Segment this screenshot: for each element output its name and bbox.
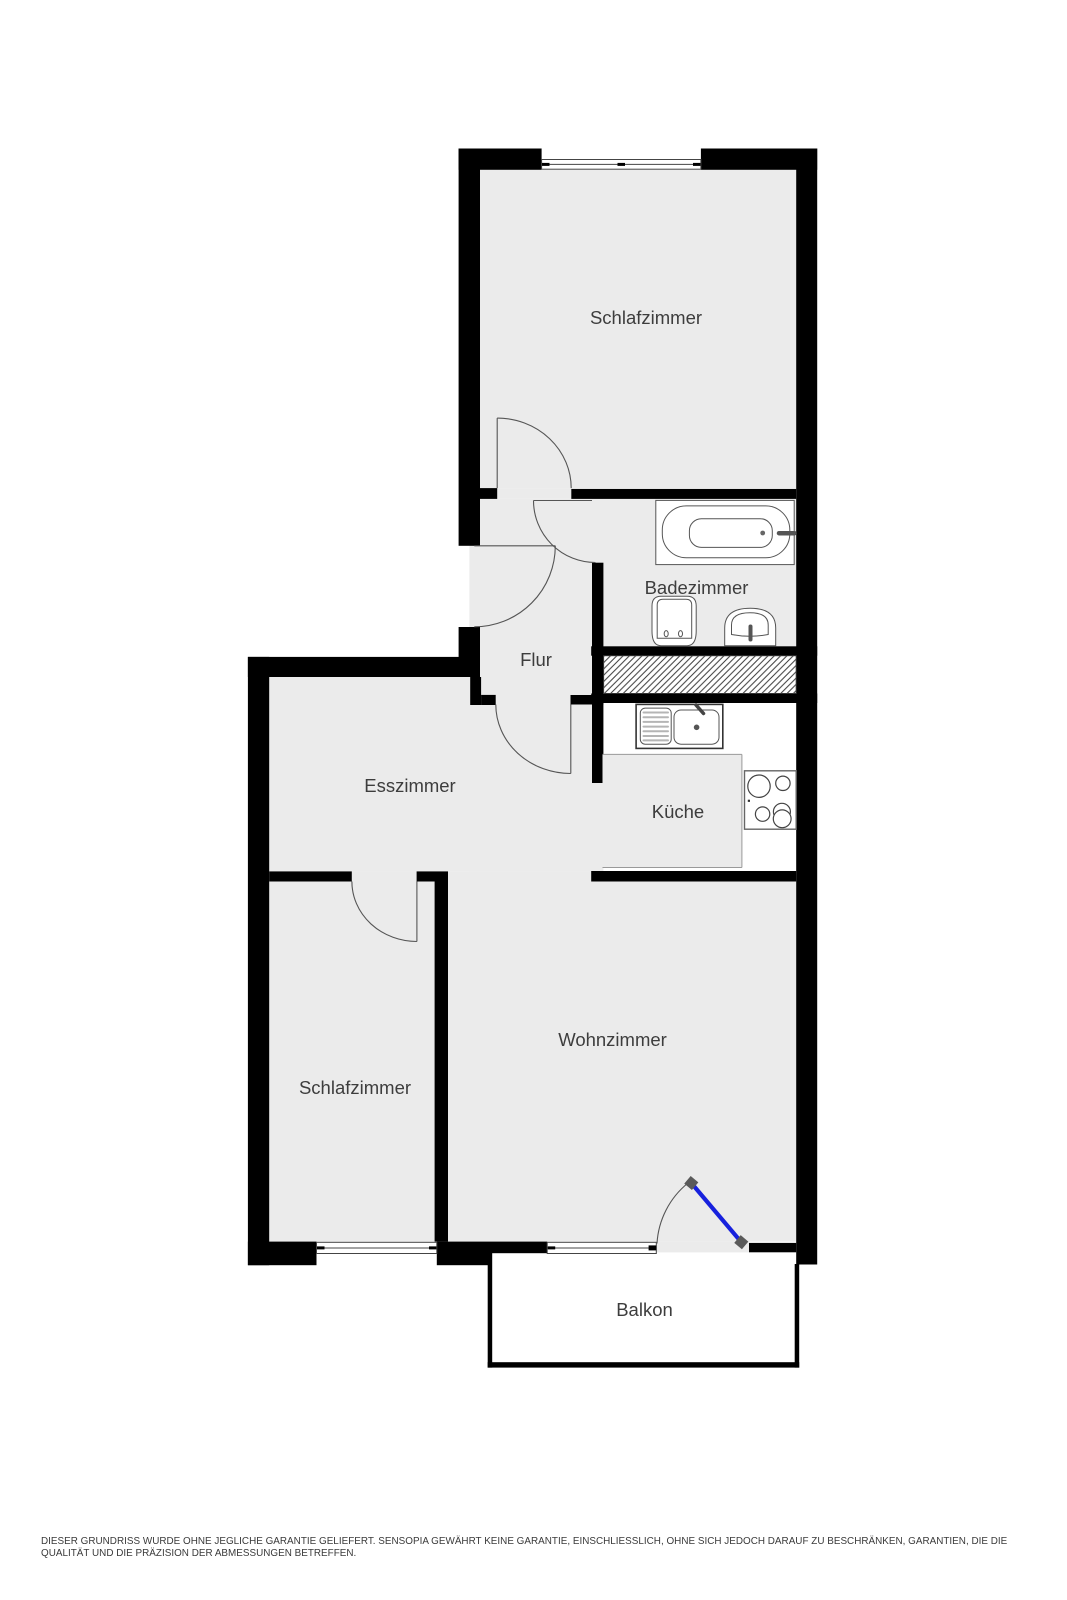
svg-text:DIESER GRUNDRISS WURDE OHNE JE: DIESER GRUNDRISS WURDE OHNE JEGLICHE GAR…	[41, 1536, 1008, 1547]
svg-text:Esszimmer: Esszimmer	[364, 775, 455, 796]
svg-text:Schlafzimmer: Schlafzimmer	[299, 1077, 411, 1098]
svg-text:Badezimmer: Badezimmer	[645, 577, 749, 598]
svg-text:Schlafzimmer: Schlafzimmer	[590, 307, 702, 328]
svg-text:Wohnzimmer: Wohnzimmer	[558, 1029, 667, 1050]
svg-text:QUALITÄT UND DIE PRÄZISION DER: QUALITÄT UND DIE PRÄZISION DER ABMESSUNG…	[41, 1548, 356, 1559]
svg-text:Flur: Flur	[520, 649, 552, 670]
svg-text:Küche: Küche	[652, 801, 704, 822]
svg-text:Balkon: Balkon	[616, 1299, 673, 1320]
